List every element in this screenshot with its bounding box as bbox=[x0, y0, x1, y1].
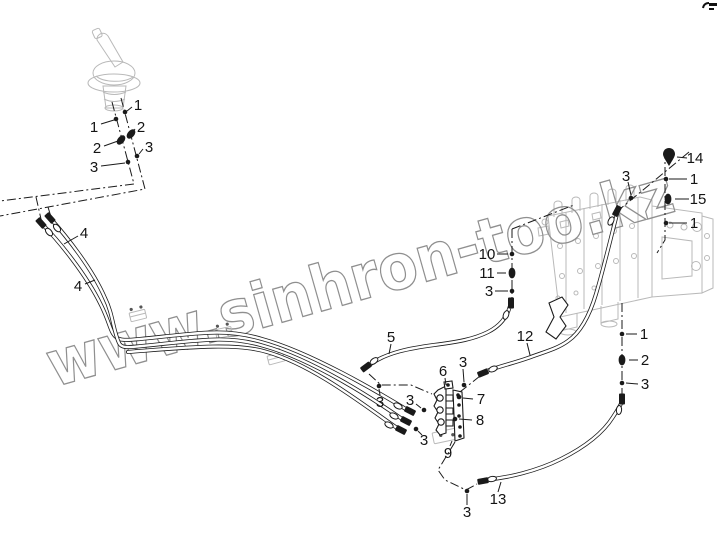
callout-label-14: 14 bbox=[687, 150, 704, 167]
callout-label-3: 3 bbox=[459, 354, 467, 371]
callout-label-1: 1 bbox=[640, 326, 648, 343]
callout-label-1: 1 bbox=[134, 97, 142, 114]
callout-leader bbox=[626, 383, 638, 384]
callout-leader bbox=[101, 163, 125, 166]
callout-leader bbox=[127, 107, 132, 111]
callout-label-7: 7 bbox=[477, 391, 485, 408]
callout-point-dot bbox=[664, 177, 669, 182]
callout-label-9: 9 bbox=[444, 445, 452, 462]
callout-label-3: 3 bbox=[145, 139, 153, 156]
pilot-joystick-drawing bbox=[88, 28, 140, 111]
callout-label-8: 8 bbox=[476, 412, 484, 429]
callout-label-2: 2 bbox=[641, 352, 649, 369]
callout-label-5: 5 bbox=[387, 329, 395, 346]
callout-point-dot bbox=[462, 383, 467, 388]
callout-point-dot bbox=[123, 110, 128, 115]
callout-leader bbox=[101, 120, 114, 124]
callout-leader bbox=[416, 404, 421, 408]
hose-13 bbox=[484, 401, 622, 480]
callout-label-2: 2 bbox=[137, 119, 145, 136]
callout-label-3: 3 bbox=[406, 392, 414, 409]
callout-label-4: 4 bbox=[80, 225, 88, 242]
callout-leader bbox=[139, 149, 143, 154]
callout-label-11: 11 bbox=[479, 265, 495, 282]
callout-point-dot bbox=[620, 381, 625, 386]
parts-diagram-page: www.sinhron-too.kz bbox=[0, 0, 717, 538]
callout-label-15: 15 bbox=[690, 191, 707, 208]
grommet-part bbox=[509, 268, 516, 279]
callout-leader bbox=[677, 157, 687, 158]
callout-point-dot bbox=[453, 417, 458, 422]
callout-label-3: 3 bbox=[376, 394, 384, 411]
callout-label-4: 4 bbox=[74, 278, 82, 295]
callout-label-3: 3 bbox=[622, 168, 630, 185]
callout-label-3: 3 bbox=[463, 504, 471, 521]
callout-leader bbox=[104, 141, 118, 146]
callout-point-dot bbox=[510, 289, 515, 294]
page-corner-mark bbox=[703, 3, 717, 10]
hose-routing-diagram: www.sinhron-too.kz bbox=[0, 0, 717, 538]
callout-point-dot bbox=[457, 395, 462, 400]
callout-point-dot bbox=[629, 196, 634, 201]
callout-label-3: 3 bbox=[420, 432, 428, 449]
callout-label-3: 3 bbox=[485, 283, 493, 300]
callout-label-3: 3 bbox=[641, 376, 649, 393]
callout-point-dot bbox=[620, 332, 625, 337]
callout-label-3: 3 bbox=[90, 159, 98, 176]
callout-point-dot bbox=[126, 160, 131, 165]
callout-point-dot bbox=[114, 117, 119, 122]
callout-label-13: 13 bbox=[490, 491, 507, 508]
valve-bracket bbox=[546, 297, 568, 339]
callout-label-1: 1 bbox=[90, 119, 98, 136]
callout-point-dot bbox=[422, 408, 427, 413]
callout-label-1: 1 bbox=[690, 171, 698, 188]
junction-block bbox=[434, 381, 464, 441]
callout-point-dot bbox=[664, 221, 669, 226]
callout-label-1: 1 bbox=[690, 215, 698, 232]
callout-point-dot bbox=[135, 154, 140, 159]
callout-leader bbox=[463, 398, 473, 399]
callout-label-12: 12 bbox=[517, 328, 534, 345]
callout-label-6: 6 bbox=[439, 363, 447, 380]
callout-point-dot bbox=[510, 252, 515, 257]
grommet-part bbox=[125, 128, 137, 141]
callout-point-dot bbox=[377, 384, 382, 389]
grommet-part bbox=[619, 355, 626, 366]
callout-point-dot bbox=[465, 489, 470, 494]
grommet-part bbox=[665, 194, 672, 205]
callout-label-2: 2 bbox=[93, 140, 101, 157]
callout-point-dot bbox=[414, 427, 419, 432]
callout-label-10: 10 bbox=[479, 246, 496, 263]
